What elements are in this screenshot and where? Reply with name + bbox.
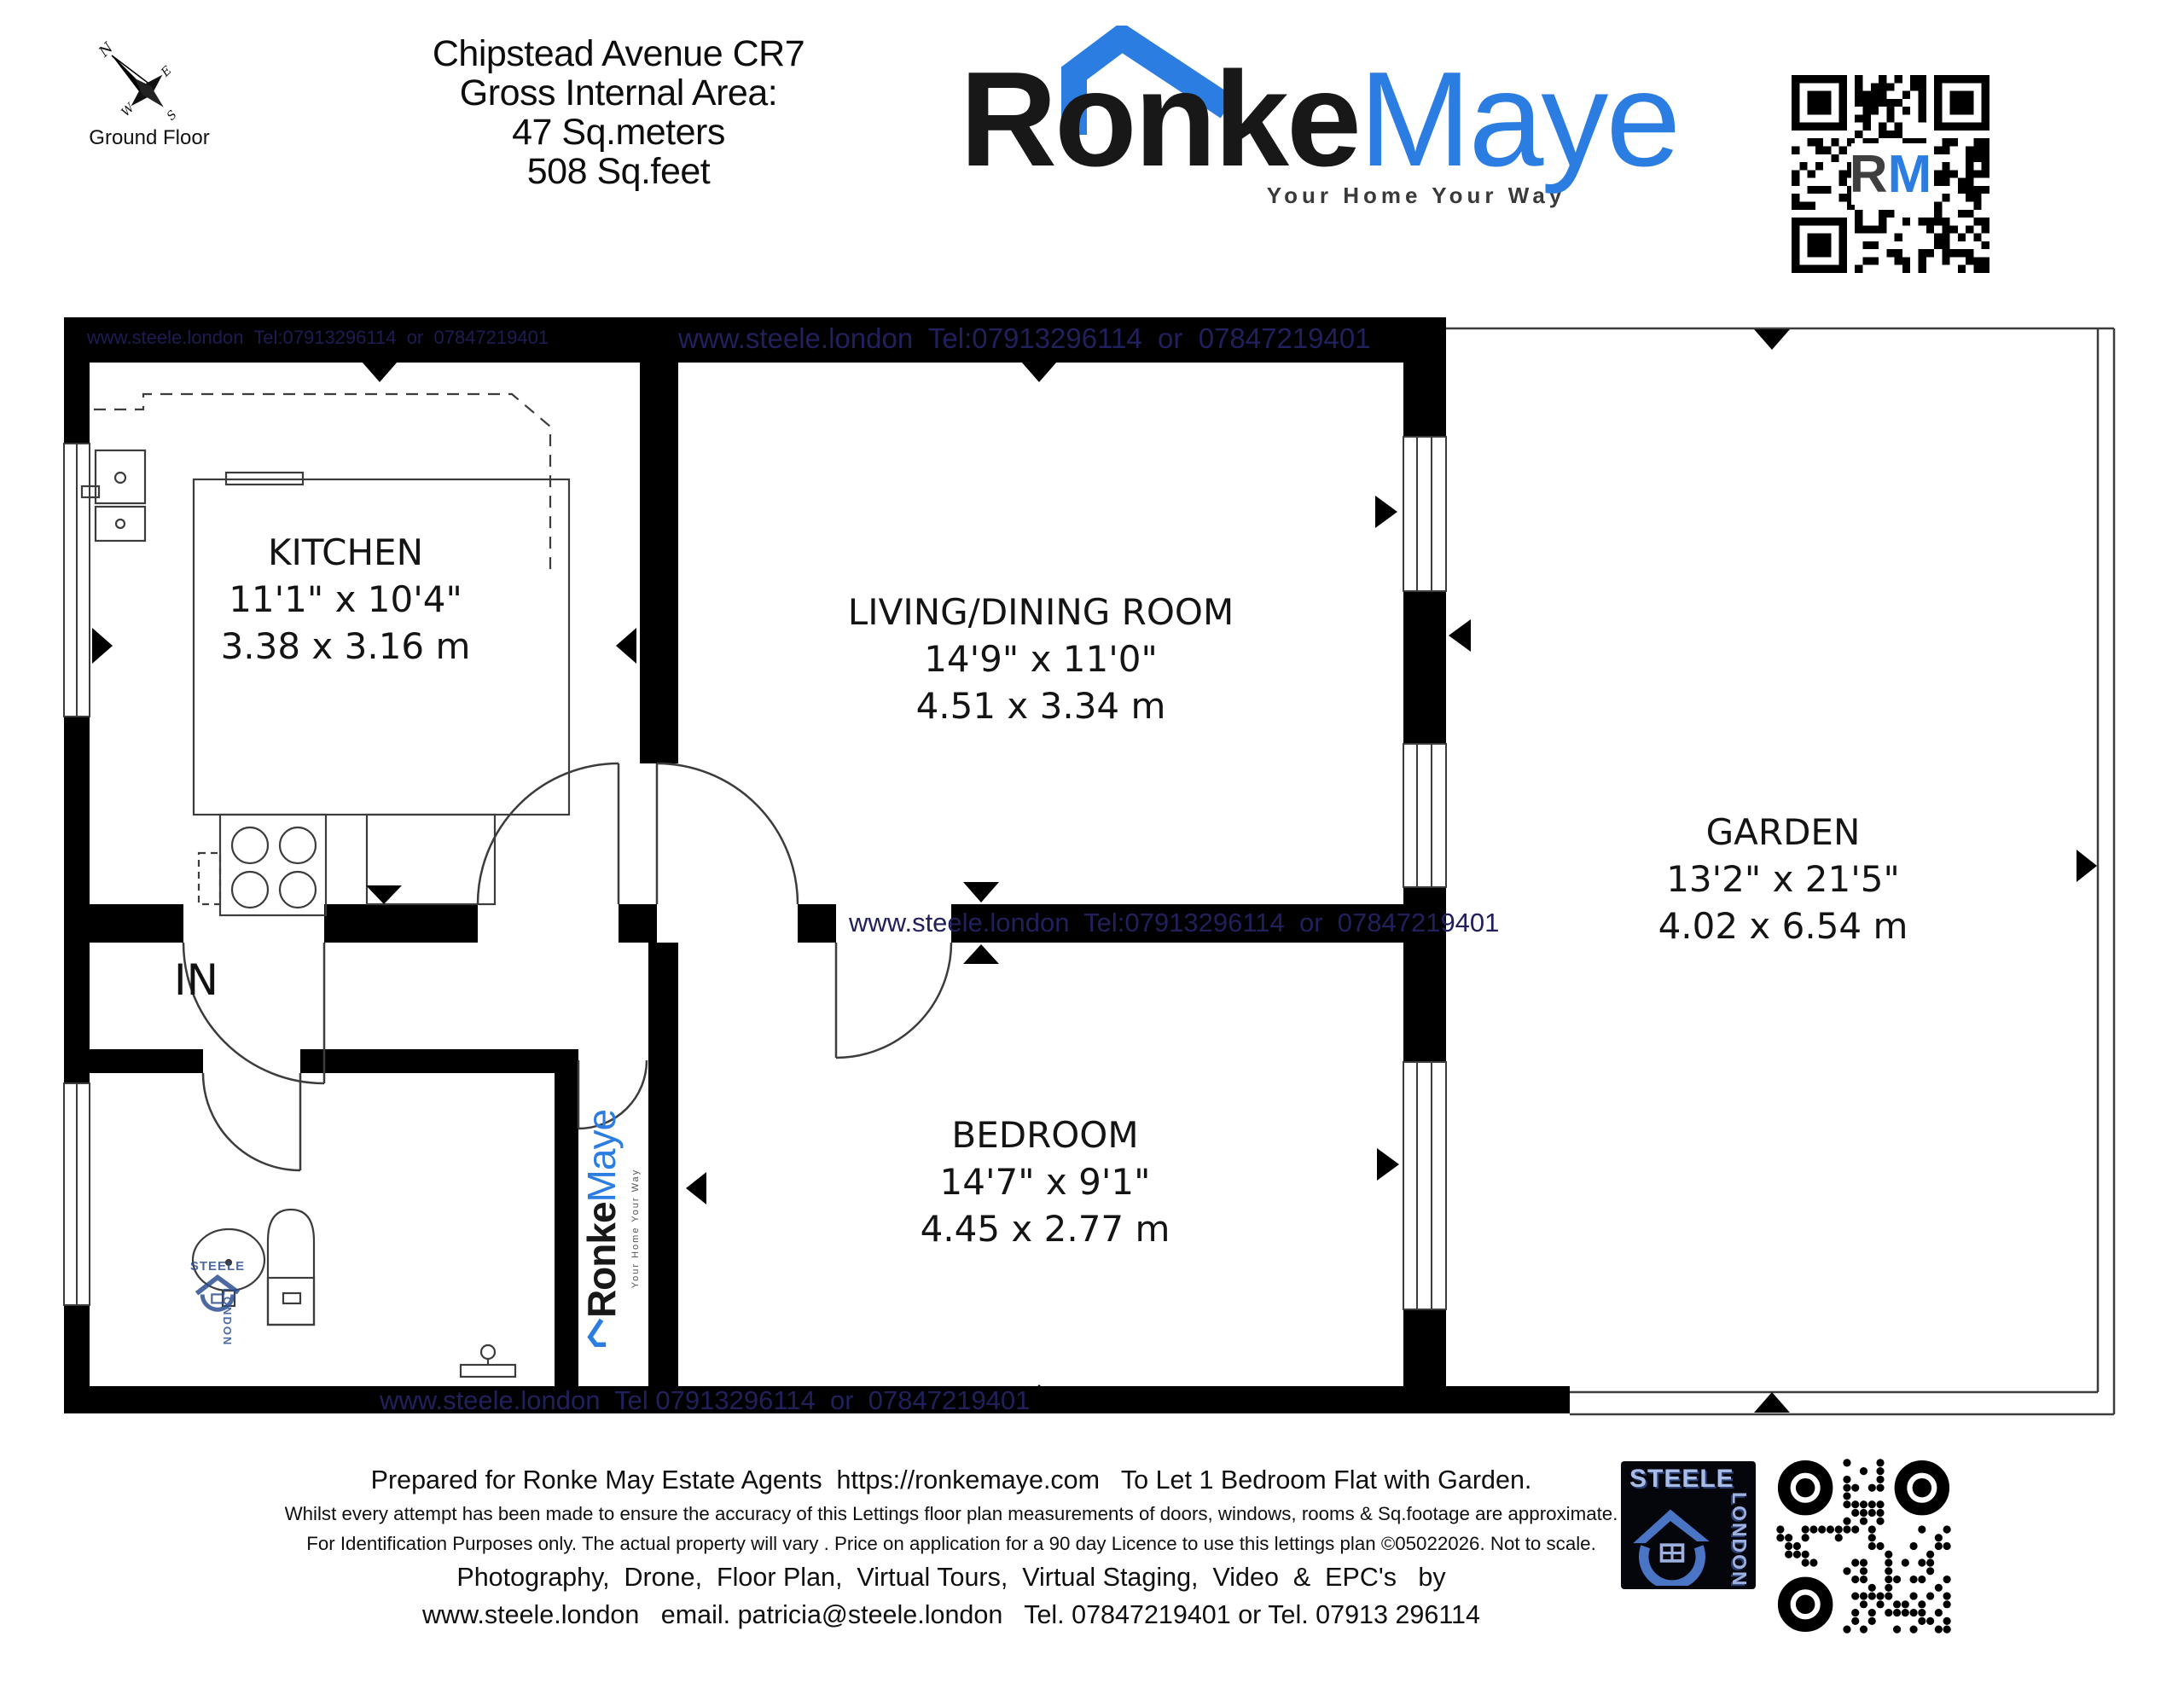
room-label-garden: GARDEN 13'2" x 21'5" 4.02 x 6.54 m <box>1536 809 2030 949</box>
living-imperial: 14'9" x 11'0" <box>793 635 1288 682</box>
watermark-top-small: www.steele.london Tel:07913296114 or 078… <box>87 327 549 349</box>
room-label-living: LIVING/DINING ROOM 14'9" x 11'0" 4.51 x … <box>793 589 1288 729</box>
watermark-bottom: www.steele.london Tel 07913296114 or 078… <box>380 1385 1030 1416</box>
watermark-house-icon <box>194 1274 241 1316</box>
vertical-roof-icon <box>586 1318 608 1347</box>
garden-name: GARDEN <box>1536 809 2030 856</box>
vertical-word-dark: Ronke <box>579 1202 624 1318</box>
living-metric: 4.51 x 3.34 m <box>793 682 1288 729</box>
watermark-steele-top: STEELE <box>171 1259 264 1274</box>
garden-imperial: 13'2" x 21'5" <box>1536 856 2030 902</box>
bedroom-metric: 4.45 x 2.77 m <box>798 1205 1292 1252</box>
kitchen-imperial: 11'1" x 10'4" <box>175 576 516 623</box>
brand-word-dark: Ronke <box>960 44 1359 194</box>
watermark-steele-side: LONDON <box>221 1288 234 1346</box>
kitchen-name: KITCHEN <box>175 529 516 576</box>
brand-word-blue: Maye <box>1359 44 1678 194</box>
entrance-label: IN <box>149 955 243 1005</box>
room-label-kitchen: KITCHEN 11'1" x 10'4" 3.38 x 3.16 m <box>175 529 516 670</box>
garden-metric: 4.02 x 6.54 m <box>1536 902 2030 949</box>
vertical-brand-logo: RonkeMaye Your Home Your Way <box>582 1105 642 1352</box>
watermark-middle: www.steele.london Tel:07913296114 or 078… <box>849 908 1499 938</box>
vertical-tagline: Your Home Your Way <box>630 1169 641 1288</box>
bedroom-name: BEDROOM <box>798 1111 1292 1158</box>
brand-logo: RonkeMaye <box>960 43 1678 213</box>
watermark-top-large: www.steele.london Tel:07913296114 or 078… <box>678 322 1371 355</box>
kitchen-metric: 3.38 x 3.16 m <box>175 623 516 670</box>
bedroom-imperial: 14'7" x 9'1" <box>798 1158 1292 1205</box>
watermark-steele-logo: STEELE LONDON <box>171 1259 264 1320</box>
room-label-bedroom: BEDROOM 14'7" x 9'1" 4.45 x 2.77 m <box>798 1111 1292 1252</box>
living-name: LIVING/DINING ROOM <box>793 589 1288 635</box>
vertical-word-blue: Maye <box>579 1110 624 1202</box>
